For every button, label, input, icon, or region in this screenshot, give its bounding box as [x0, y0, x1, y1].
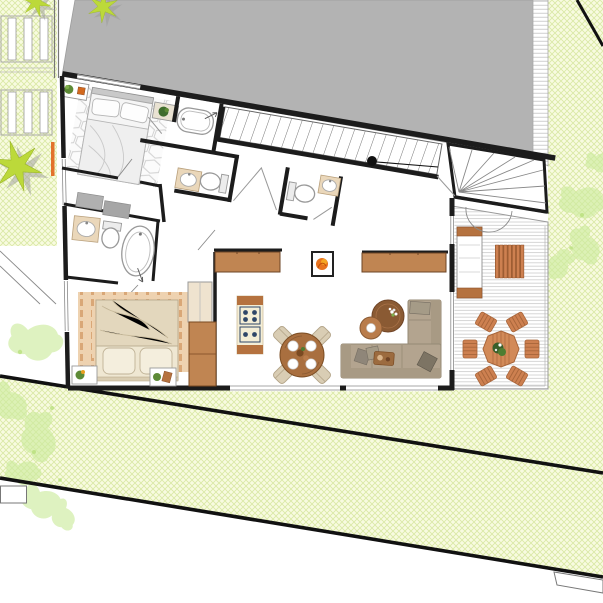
lounge-chair — [457, 227, 482, 298]
window-east-2 — [450, 292, 455, 370]
outdoor-table — [483, 331, 519, 367]
bedroom-2 — [72, 282, 216, 386]
window-west-1 — [61, 158, 68, 206]
neighbor-paving-lines — [0, 251, 56, 304]
plate — [306, 341, 316, 351]
pillow — [91, 98, 120, 117]
duvet — [78, 119, 149, 185]
floor-plan-drawing — [0, 0, 603, 603]
sofa-tray — [374, 351, 395, 365]
window-south-1 — [230, 385, 340, 392]
wardrobe — [188, 282, 216, 386]
floor-plan-canvas — [0, 0, 603, 603]
ensuite-sink — [175, 168, 202, 192]
window-south-2 — [346, 385, 438, 392]
kitchen-sideboard — [215, 252, 280, 272]
pillow — [103, 348, 135, 374]
nightstand-right — [150, 368, 176, 386]
siding-strip — [533, 0, 548, 166]
back-cushion — [410, 301, 431, 314]
outdoor-bench — [495, 245, 524, 278]
window-west-2 — [63, 280, 70, 332]
garden-right — [548, 0, 603, 577]
wc-sink — [318, 175, 341, 196]
gate-marker — [51, 142, 55, 176]
garden-left-pergola — [0, 0, 59, 246]
bath2-sink — [72, 216, 100, 243]
runner-rug — [237, 296, 263, 354]
wood-stove — [312, 252, 333, 276]
terrace — [452, 206, 548, 389]
dining-set — [272, 325, 332, 385]
window-east-1 — [450, 216, 455, 244]
garden-bottom — [0, 376, 548, 569]
plate — [288, 341, 298, 351]
media-sideboard — [362, 253, 446, 272]
boundary-step-left — [1, 486, 27, 503]
nightstand-left — [72, 366, 97, 384]
plate — [288, 359, 298, 369]
